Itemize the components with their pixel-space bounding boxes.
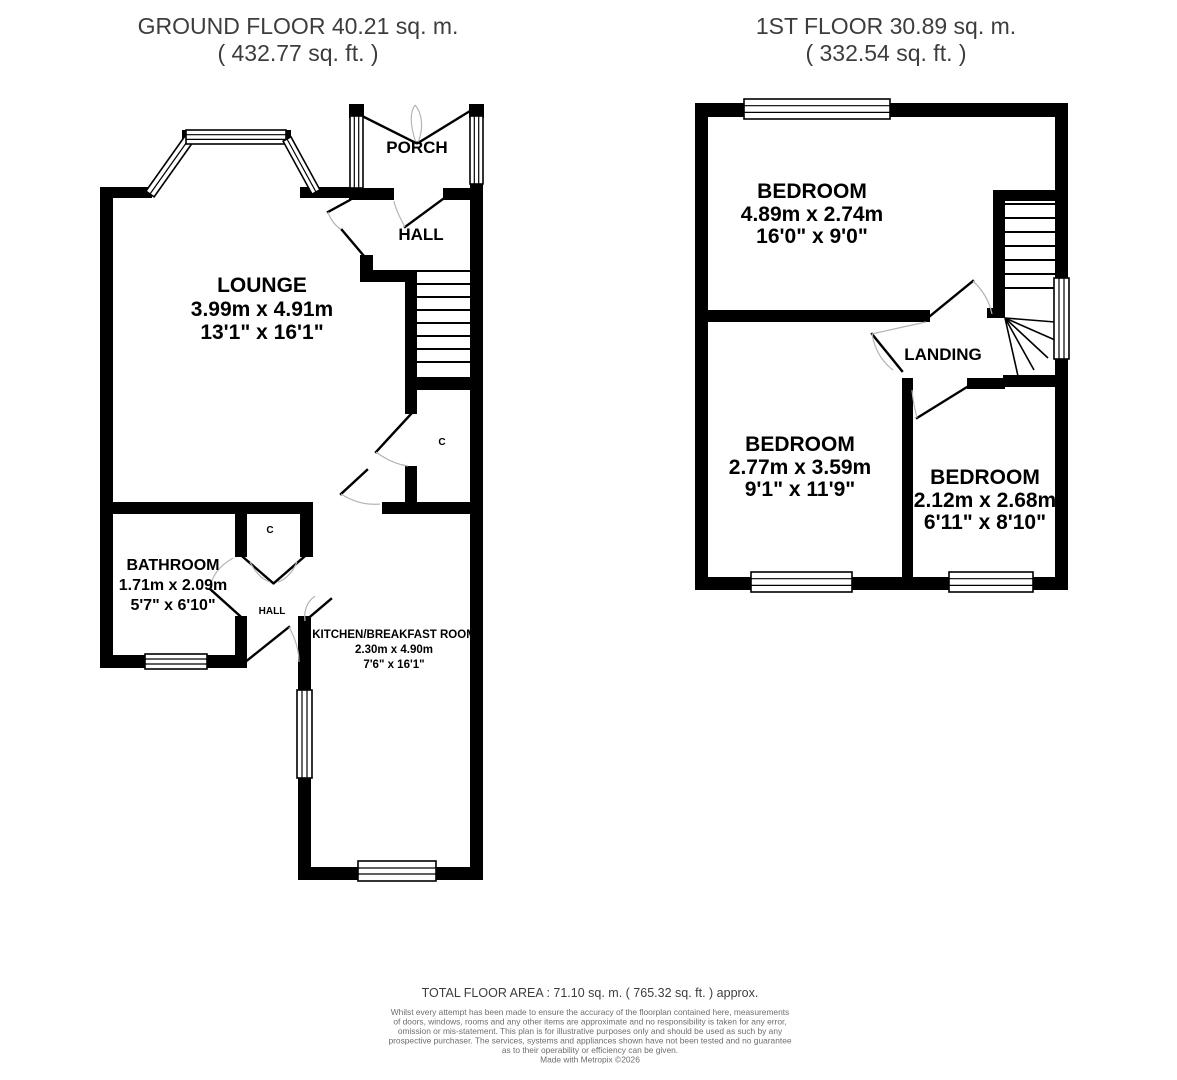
wall-segment <box>300 512 313 557</box>
ground-floor-walls <box>100 104 484 880</box>
porch-window-left <box>350 116 363 188</box>
bay-window-center <box>186 130 286 144</box>
bedroom1-size-metric: 4.89m x 2.74m <box>741 203 883 226</box>
bedroom1-size-imperial: 16'0" x 9'0" <box>756 225 868 248</box>
lounge-door-leaf <box>342 230 364 256</box>
wall-segment <box>695 103 708 590</box>
kitchen-side-window <box>297 690 312 778</box>
wall-segment <box>987 308 1005 318</box>
bedroom3-window <box>949 572 1033 592</box>
kitchen-size-metric: 2.30m x 4.90m <box>355 644 433 656</box>
door-swing-arc <box>872 322 926 334</box>
wall-segment <box>405 377 483 390</box>
cupboard-door-leaf <box>376 414 411 452</box>
stair-winder-line <box>1005 318 1034 370</box>
door-swing-arc <box>376 452 408 466</box>
window-frame <box>744 99 890 119</box>
bedroom1-door-leaf <box>930 281 973 316</box>
wall-segment <box>360 270 408 282</box>
stair-winder-line <box>1005 318 1018 376</box>
window-frame <box>145 654 207 669</box>
stairwell-window <box>1054 278 1069 359</box>
inner-hall-label: HALL <box>259 606 286 617</box>
bathroom-window <box>145 654 207 669</box>
wall-segment <box>470 182 483 880</box>
bedroom3-size-metric: 2.12m x 2.68m <box>914 489 1056 512</box>
kitchen-label: KITCHEN/BREAKFAST ROOM <box>312 629 476 641</box>
disclaimer-line: of doors, windows, rooms and any other i… <box>393 1017 786 1027</box>
wall-segment <box>298 616 311 693</box>
first-floor-title: 1ST FLOOR 30.89 sq. m. <box>756 13 1016 39</box>
window-frame <box>751 572 852 592</box>
wall-segment <box>993 190 1005 318</box>
kitchen-bottom-window <box>358 861 436 881</box>
window-frame <box>470 116 483 184</box>
bedroom3-label: BEDROOM <box>930 466 1040 489</box>
lounge-size-metric: 3.99m x 4.91m <box>191 298 333 321</box>
wall-segment <box>695 310 930 322</box>
lounge-door-leaf <box>328 200 350 212</box>
kitchen-size-imperial: 7'6" x 16'1" <box>363 659 424 671</box>
first-floor-stairs <box>1005 204 1055 376</box>
lounge-size-imperial: 13'1" x 16'1" <box>200 321 323 344</box>
ground-floor-subtitle: ( 432.77 sq. ft. ) <box>217 40 378 66</box>
porch-label: PORCH <box>386 138 447 157</box>
floorplan-page: GROUND FLOOR 40.21 sq. m. ( 432.77 sq. f… <box>0 0 1177 1080</box>
disclaimer-line: Whilst every attempt has been made to en… <box>391 1007 790 1017</box>
inner-hall-door-leaf <box>244 627 289 663</box>
window-frame <box>186 130 286 144</box>
window-pane <box>150 139 189 194</box>
wall-segment <box>349 188 394 200</box>
bathroom-size-imperial: 5'7" x 6'10" <box>130 597 215 614</box>
window-frame <box>358 861 436 881</box>
ground-floor-stairs <box>417 271 470 362</box>
made-with-credit: Made with Metropix ©2026 <box>540 1055 640 1065</box>
ground-floor-title: GROUND FLOOR 40.21 sq. m. <box>138 13 459 39</box>
disclaimer-line: omission or mis-statement. This plan is … <box>398 1026 783 1036</box>
door-swing-arc <box>289 627 299 662</box>
wall-segment <box>100 502 313 514</box>
disclaimer-line: prospective purchaser. The services, sys… <box>388 1036 791 1046</box>
window-pane <box>287 139 316 192</box>
door-swing-arc <box>394 201 405 227</box>
wall-segment <box>902 378 913 577</box>
bedroom2-label: BEDROOM <box>745 433 855 456</box>
lounge-label: LOUNGE <box>217 274 307 297</box>
kitchen-door-leaf <box>341 470 367 494</box>
wall-segment <box>382 502 483 514</box>
door-swing-arc <box>328 212 342 230</box>
wall-segment <box>443 188 483 200</box>
bedroom1-label: BEDROOM <box>757 180 867 203</box>
bedroom2-size-metric: 2.77m x 3.59m <box>729 456 871 479</box>
hall-cupboard-label: C <box>266 525 273 536</box>
wall-segment <box>405 390 417 414</box>
wall-segment <box>1003 375 1068 387</box>
wall-segment <box>235 512 247 557</box>
bay-window-left <box>146 136 193 197</box>
bedroom2-size-imperial: 9'1" x 11'9" <box>745 478 856 501</box>
wall-segment <box>405 466 417 506</box>
porch-window-right <box>470 116 483 184</box>
front-door-leaf <box>405 196 447 227</box>
bedroom3-door-leaf <box>917 387 967 418</box>
stair-winder-line <box>1005 318 1048 358</box>
bedroom2-window <box>751 572 852 592</box>
window-frame <box>949 572 1033 592</box>
disclaimer-line: as to their operability or efficiency ca… <box>502 1045 678 1055</box>
total-floor-area: TOTAL FLOOR AREA : 71.10 sq. m. ( 765.32… <box>422 986 759 1000</box>
window-frame <box>297 690 312 778</box>
bathroom-label: BATHROOM <box>126 557 219 574</box>
wall-segment <box>967 378 1005 389</box>
wall-segment <box>298 777 311 880</box>
hall-cupboard-door-leaf <box>243 557 273 583</box>
wall-segment <box>100 187 113 668</box>
hall-cupboard-door-leaf <box>274 557 304 583</box>
first-floor-subtitle: ( 332.54 sq. ft. ) <box>805 40 966 66</box>
bay-window-right <box>283 137 320 194</box>
window-frame <box>1054 278 1069 359</box>
hall-label: HALL <box>398 225 443 244</box>
wall-segment <box>405 270 417 390</box>
cupboard-under-stairs-label: C <box>438 437 445 448</box>
floorplan-canvas: GROUND FLOOR 40.21 sq. m. ( 432.77 sq. f… <box>0 0 1177 1080</box>
wall-segment <box>300 187 350 198</box>
bedroom3-size-imperial: 6'11" x 8'10" <box>924 511 1046 534</box>
door-swing-arc <box>341 494 380 504</box>
window-frame <box>350 116 363 188</box>
bathroom-size-metric: 1.71m x 2.09m <box>119 577 228 594</box>
bedroom1-window <box>744 99 890 119</box>
landing-label: LANDING <box>904 345 981 364</box>
